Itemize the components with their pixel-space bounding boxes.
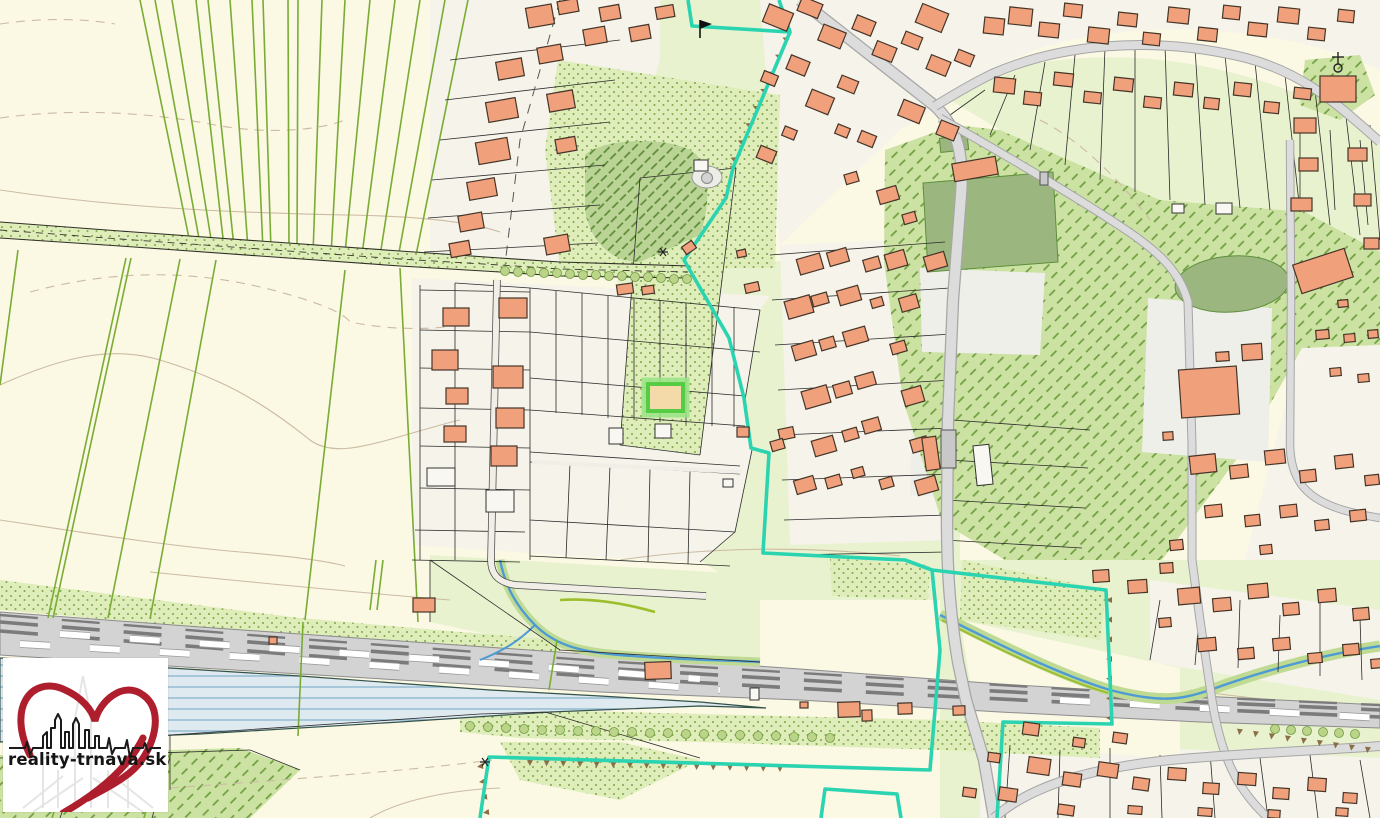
building (655, 5, 675, 20)
building (1308, 652, 1323, 663)
building (1172, 204, 1184, 213)
building (1238, 647, 1255, 659)
building (1112, 732, 1127, 744)
building (1358, 374, 1370, 383)
tree-icon (1351, 730, 1360, 739)
building (1170, 539, 1184, 550)
building (1177, 587, 1200, 605)
building (1093, 569, 1110, 582)
building (953, 706, 965, 715)
tree-icon (1287, 726, 1296, 735)
building (449, 240, 471, 257)
building (1143, 96, 1161, 109)
building (642, 285, 655, 295)
building (1264, 449, 1285, 465)
field-line (288, 0, 289, 252)
building (1097, 762, 1119, 779)
building (1344, 334, 1356, 343)
building (1315, 519, 1330, 530)
tree-icon (790, 733, 799, 742)
building (1247, 583, 1268, 599)
building (1371, 659, 1380, 669)
building (1197, 27, 1217, 42)
building (1308, 777, 1327, 791)
building (723, 479, 733, 487)
tree-icon (1271, 725, 1280, 734)
tree-icon (605, 272, 614, 281)
building (427, 468, 455, 486)
building (609, 428, 623, 444)
building (1072, 737, 1085, 748)
building (1260, 544, 1273, 554)
tree-icon (772, 732, 781, 741)
tree-icon (1303, 727, 1312, 736)
tree-icon (646, 729, 655, 738)
building (1167, 7, 1189, 24)
building (1238, 772, 1257, 785)
building (1241, 343, 1262, 360)
building (491, 446, 517, 466)
building (1277, 7, 1299, 24)
building (800, 702, 808, 708)
building (655, 424, 671, 438)
building (1113, 77, 1133, 92)
building (525, 4, 554, 28)
building (1160, 563, 1174, 574)
tree-icon (683, 275, 692, 284)
building (1204, 504, 1222, 518)
building (1038, 22, 1059, 38)
tree-icon (618, 272, 627, 281)
building (1229, 464, 1248, 479)
building (645, 662, 672, 680)
building (444, 426, 466, 442)
building (1233, 82, 1251, 97)
building (1299, 469, 1316, 483)
tree-icon (520, 725, 529, 734)
building (1008, 7, 1033, 26)
building (555, 136, 577, 153)
building (496, 408, 524, 428)
tree-icon (538, 726, 547, 735)
building (413, 598, 435, 612)
tree-icon (1319, 728, 1328, 737)
building (1273, 787, 1290, 799)
building (475, 137, 510, 164)
building (1062, 772, 1082, 787)
tree-icon (566, 270, 575, 279)
building (496, 58, 525, 80)
tree-icon (682, 730, 691, 739)
building (1283, 602, 1300, 615)
building (1299, 158, 1318, 171)
building (1222, 5, 1240, 20)
tree-icon (540, 269, 549, 278)
building (1117, 12, 1137, 27)
building (1244, 514, 1260, 527)
tree-icon (592, 727, 601, 736)
building (1142, 32, 1160, 46)
field-line (297, 0, 298, 252)
tree-icon (628, 728, 637, 737)
tree-icon (556, 726, 565, 735)
tree-icon (502, 724, 511, 733)
building (694, 160, 708, 171)
tree-icon (754, 732, 763, 741)
tree-icon (826, 734, 835, 743)
building (1247, 22, 1267, 37)
tree-icon (484, 723, 493, 732)
building (1316, 329, 1330, 339)
building (486, 490, 514, 512)
building (1216, 203, 1232, 214)
building (1354, 194, 1371, 206)
building (1053, 72, 1073, 87)
building (458, 212, 484, 232)
tree-icon (579, 271, 588, 280)
building (737, 427, 749, 437)
tree-icon (501, 267, 510, 276)
building (993, 77, 1015, 94)
building (547, 90, 576, 112)
building (1057, 804, 1074, 816)
building (485, 98, 518, 123)
building (1022, 722, 1040, 736)
building (1349, 509, 1366, 522)
building (1268, 810, 1281, 818)
watermark-logo: reality-trnava.sk (3, 658, 168, 812)
building (1343, 793, 1358, 804)
tree-icon (670, 275, 679, 284)
tree-icon (664, 729, 673, 738)
tree-icon (808, 733, 817, 742)
building (1197, 637, 1216, 652)
building (998, 787, 1018, 802)
building (432, 350, 458, 370)
building (838, 702, 861, 718)
building (1317, 588, 1336, 603)
building (1040, 172, 1048, 185)
building (1353, 607, 1370, 620)
building (1128, 806, 1143, 815)
building (1168, 767, 1187, 780)
building (1338, 300, 1349, 308)
tree-icon (610, 728, 619, 737)
building (1337, 9, 1354, 23)
map-canvas[interactable] (0, 0, 1380, 818)
highlighted-parcel[interactable] (645, 381, 686, 414)
building (862, 710, 872, 721)
building (1198, 808, 1213, 817)
tree-icon (657, 274, 666, 283)
tree-icon (700, 730, 709, 739)
building (1132, 777, 1150, 791)
building (1173, 82, 1193, 97)
building (629, 24, 651, 41)
building (1212, 597, 1231, 612)
building (983, 17, 1005, 35)
building (987, 752, 1000, 763)
building (1203, 97, 1219, 110)
tree-icon (574, 727, 583, 736)
building (1216, 352, 1230, 362)
building (443, 308, 469, 326)
building (1178, 366, 1239, 418)
building (898, 703, 912, 714)
tree-icon (592, 271, 601, 280)
building (583, 26, 607, 46)
tree-icon (718, 731, 727, 740)
tree-icon (1335, 729, 1344, 738)
building (1023, 91, 1041, 106)
building (1273, 637, 1291, 650)
tree-icon (466, 722, 475, 731)
building (1336, 808, 1349, 817)
building (1189, 454, 1217, 475)
building (1330, 368, 1342, 377)
building (1348, 148, 1367, 161)
building (1087, 27, 1109, 44)
building (1368, 330, 1379, 339)
tree-icon (644, 273, 653, 282)
building (1293, 87, 1311, 100)
building (269, 637, 277, 644)
building (1163, 432, 1174, 441)
building (499, 298, 527, 318)
building (962, 787, 976, 798)
building (446, 388, 468, 404)
building (1203, 782, 1220, 794)
building (544, 234, 571, 255)
building (616, 283, 633, 295)
building (1343, 643, 1360, 655)
page: { "watermark": { "text": "reality-trnava… (0, 0, 1380, 818)
building (1159, 617, 1172, 627)
building (1083, 91, 1101, 104)
tree-icon (514, 268, 523, 277)
building (493, 366, 523, 388)
building (1364, 238, 1379, 249)
building (599, 4, 621, 21)
building (1365, 474, 1380, 485)
building (1294, 118, 1316, 133)
tree-icon (736, 731, 745, 740)
building (750, 688, 759, 700)
watermark-text: reality-trnava.sk (8, 750, 167, 769)
building (1320, 76, 1356, 102)
tree-icon (553, 269, 562, 278)
building (1263, 101, 1279, 114)
building (941, 430, 956, 468)
building (1307, 27, 1325, 41)
tree-icon (527, 268, 536, 277)
tree-icon (631, 273, 640, 282)
building (537, 44, 563, 64)
building (736, 249, 746, 258)
building (1128, 579, 1148, 593)
building (1027, 757, 1051, 776)
building (1279, 504, 1297, 518)
building (1291, 198, 1312, 211)
building (1334, 454, 1353, 469)
building (1063, 3, 1082, 18)
